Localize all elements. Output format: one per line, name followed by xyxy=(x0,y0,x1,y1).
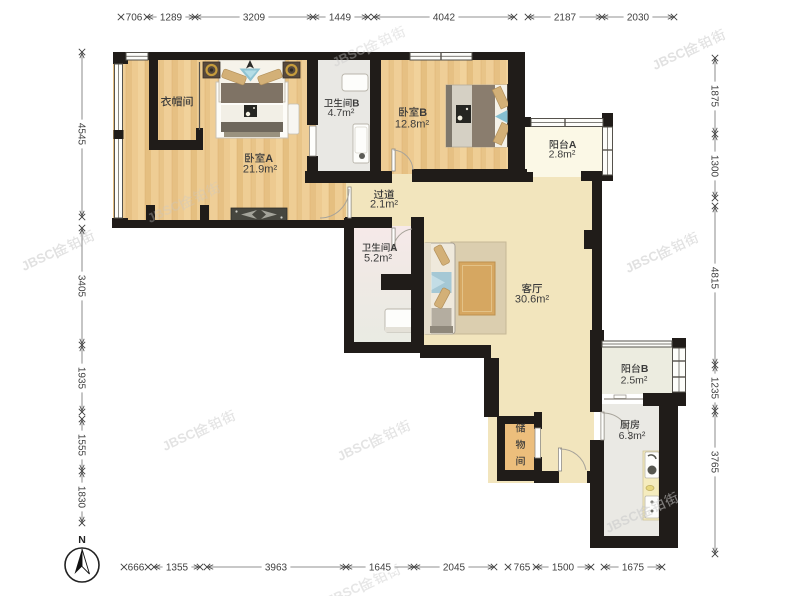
svg-text:1449: 1449 xyxy=(329,13,352,24)
svg-text:4042: 4042 xyxy=(433,13,456,24)
svg-text:1645: 1645 xyxy=(369,563,392,574)
svg-text:3405: 3405 xyxy=(76,275,87,298)
svg-text:666: 666 xyxy=(128,563,145,574)
svg-text:765: 765 xyxy=(514,563,531,574)
svg-text:12.8m²: 12.8m² xyxy=(395,119,430,131)
svg-text:5.2m²: 5.2m² xyxy=(364,253,392,265)
svg-text:3209: 3209 xyxy=(243,13,266,24)
svg-text:6.3m²: 6.3m² xyxy=(619,430,646,442)
svg-text:706: 706 xyxy=(126,13,143,24)
svg-text:2.8m²: 2.8m² xyxy=(549,149,576,161)
svg-text:2045: 2045 xyxy=(443,563,466,574)
svg-text:1300: 1300 xyxy=(709,155,720,178)
svg-text:4545: 4545 xyxy=(76,123,87,146)
svg-text:1935: 1935 xyxy=(76,367,87,390)
svg-text:2030: 2030 xyxy=(627,13,650,24)
svg-text:3963: 3963 xyxy=(265,563,288,574)
svg-text:3765: 3765 xyxy=(709,451,720,474)
svg-text:B: B xyxy=(641,364,649,375)
svg-text:21.9m²: 21.9m² xyxy=(243,164,278,176)
svg-text:N: N xyxy=(78,534,86,546)
svg-text:B: B xyxy=(419,107,427,119)
svg-text:2187: 2187 xyxy=(554,13,577,24)
svg-text:1289: 1289 xyxy=(160,13,183,24)
svg-text:1875: 1875 xyxy=(709,85,720,108)
svg-text:2.1m²: 2.1m² xyxy=(370,199,398,211)
svg-text:1235: 1235 xyxy=(709,377,720,400)
svg-text:1355: 1355 xyxy=(166,563,189,574)
svg-text:2.5m²: 2.5m² xyxy=(621,375,648,387)
svg-text:1500: 1500 xyxy=(552,563,575,574)
svg-text:1830: 1830 xyxy=(76,486,87,509)
svg-text:1555: 1555 xyxy=(76,434,87,457)
svg-text:1675: 1675 xyxy=(622,563,645,574)
svg-text:30.6m²: 30.6m² xyxy=(515,294,550,306)
svg-text:4.7m²: 4.7m² xyxy=(328,107,355,119)
svg-text:4815: 4815 xyxy=(709,267,720,290)
